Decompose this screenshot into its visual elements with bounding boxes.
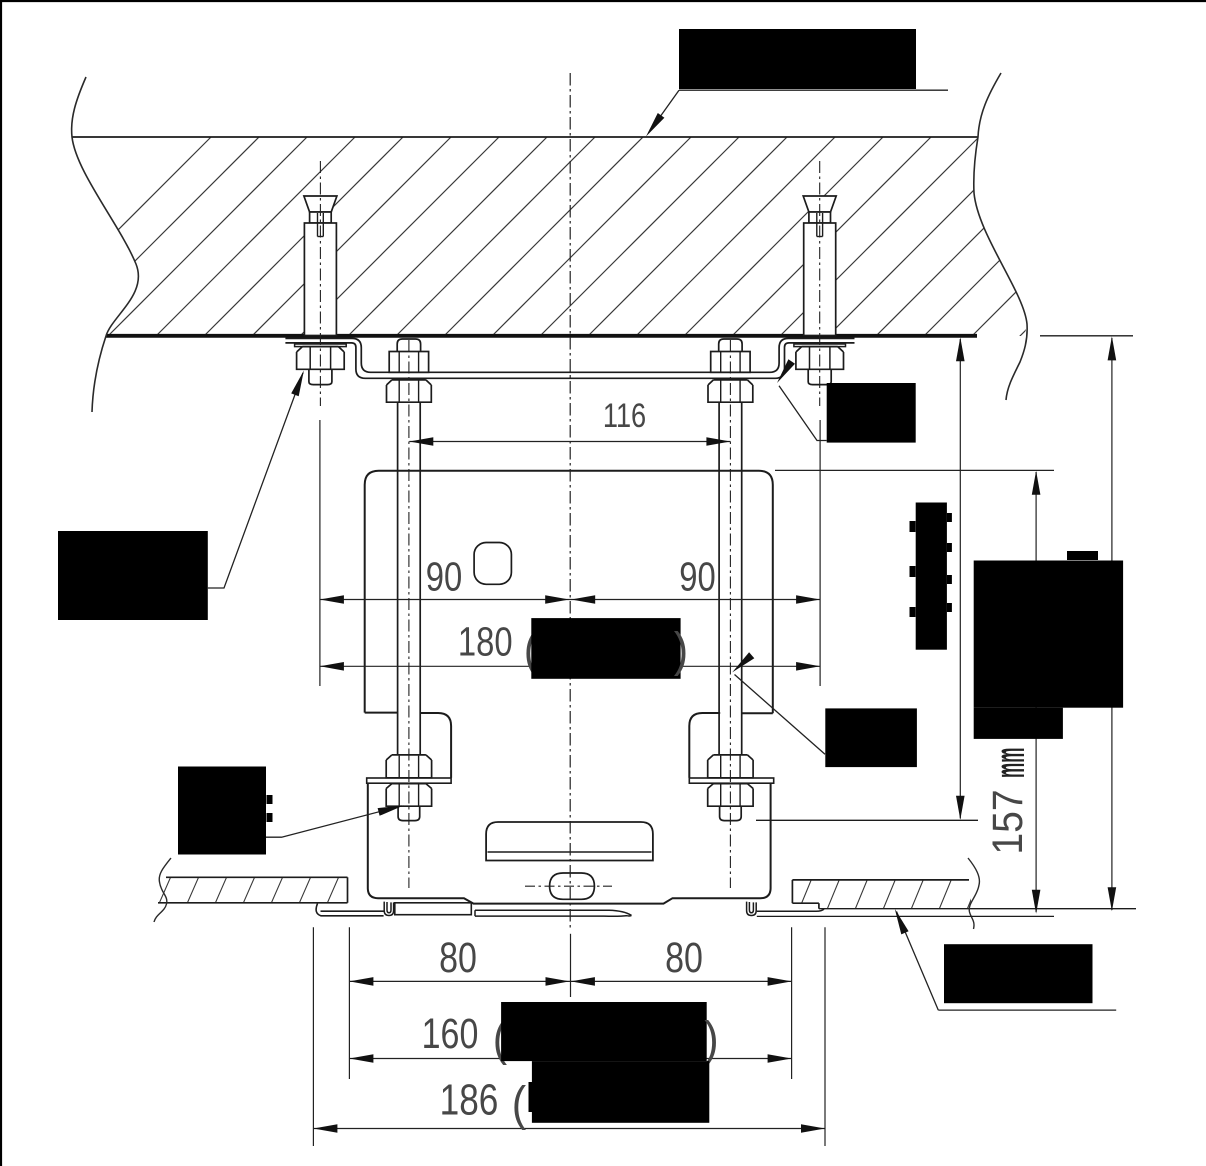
svg-text:116: 116 bbox=[603, 396, 646, 435]
svg-text:80: 80 bbox=[665, 934, 703, 981]
svg-text:90: 90 bbox=[679, 553, 715, 599]
svg-text:157: 157 bbox=[983, 789, 1031, 854]
svg-text:160: 160 bbox=[422, 1010, 479, 1057]
svg-text:90: 90 bbox=[426, 553, 462, 599]
svg-text:186: 186 bbox=[440, 1076, 499, 1125]
svg-text:): ) bbox=[704, 1012, 718, 1066]
svg-text:180: 180 bbox=[458, 618, 513, 664]
svg-text:): ) bbox=[674, 623, 688, 677]
svg-text:80: 80 bbox=[439, 934, 477, 981]
svg-text:mm: mm bbox=[986, 748, 1033, 778]
svg-text:(: ( bbox=[512, 1077, 526, 1131]
